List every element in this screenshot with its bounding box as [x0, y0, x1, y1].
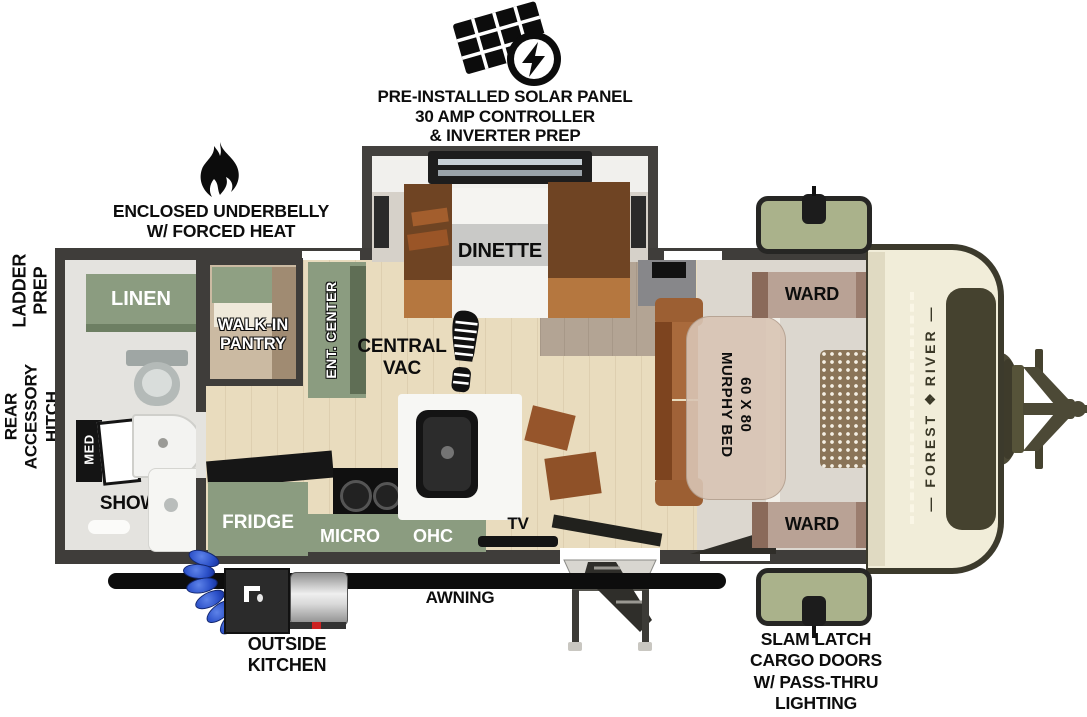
outside-kitchen-griddle: [290, 572, 348, 626]
chair: [544, 452, 601, 501]
nightstand-top: [652, 262, 686, 278]
boot-print-icon: [444, 310, 484, 396]
burner: [373, 482, 401, 510]
murphy-bed-label: 60 X 80 MURPHY BED: [716, 315, 754, 495]
med-label: MED: [82, 420, 97, 480]
central-vac-label: CENTRAL VAC: [356, 336, 448, 380]
ladder-prep-callout: LADDER PREP: [9, 236, 50, 346]
cargo-door-latch-stem: [812, 186, 816, 196]
solar-callout: PRE-INSTALLED SOLAR PANEL 30 AMP CONTROL…: [330, 87, 680, 146]
entry-steps: [558, 556, 662, 654]
burner: [340, 480, 372, 512]
pantry-label: WALK-IN PANTRY: [205, 316, 301, 354]
outside-kitchen-callout: OUTSIDE KITCHEN: [227, 634, 347, 675]
cargo-door-latch: [802, 194, 826, 224]
tv-label: TV: [498, 514, 538, 534]
brand-word-river: RIVER: [922, 328, 938, 386]
brand-emblem-icon: ❖: [922, 393, 939, 406]
front-cap-window-panel: [946, 288, 996, 530]
ward-label-bottom: WARD: [768, 514, 856, 535]
dinette-bench: [548, 182, 630, 280]
underbelly-callout: ENCLOSED UNDERBELLY W/ FORCED HEAT: [66, 201, 376, 241]
outside-kitchen-knob: [257, 594, 263, 602]
rear-accessory-hitch-callout: REAR ACCESSORY HITCH: [1, 354, 62, 480]
outside-kitchen-sink-box: [224, 568, 290, 634]
ward-label-top: WARD: [768, 284, 856, 305]
bath-mat: [88, 520, 130, 534]
front-cap-shading: [868, 252, 885, 566]
brand-word-forest: FOREST: [922, 413, 938, 488]
fridge-label: FRIDGE: [208, 512, 308, 534]
ent-center-label: ENT. CENTER: [323, 255, 339, 405]
dinette-label: DINETTE: [452, 240, 548, 263]
forest-river-logo: — FOREST ❖ RIVER —: [919, 278, 941, 538]
solar-panel-icon: [450, 0, 568, 92]
outside-kitchen-faucet: [244, 586, 249, 602]
cargo-doors-callout: SLAM LATCH CARGO DOORS W/ PASS-THRU LIGH…: [727, 629, 905, 714]
dinette-window-pane: [438, 170, 582, 176]
micro-label: MICRO: [313, 526, 387, 547]
cargo-door-latch: [802, 596, 826, 626]
bathroom-doorway: [196, 412, 206, 478]
logo-rule: —: [922, 495, 938, 512]
sink-drain: [441, 446, 454, 459]
flame-icon: [196, 142, 244, 202]
shower-drain: [158, 438, 168, 448]
linen-label: LINEN: [86, 288, 196, 311]
pantry-shelf-green: [212, 267, 272, 303]
rv-floorplan-diagram: PRE-INSTALLED SOLAR PANEL 30 AMP CONTROL…: [0, 0, 1087, 717]
bed-pillow: [820, 350, 868, 468]
ohc-label: OHC: [406, 526, 460, 547]
dinette-window-pane: [438, 159, 582, 165]
front-cap-molding: [910, 292, 914, 524]
window-gap: [664, 251, 722, 260]
tv-soundbar: [478, 536, 558, 547]
bath-sink: [164, 498, 178, 512]
outside-kitchen-valve: [312, 622, 321, 629]
dinette-bench-seat: [548, 278, 630, 318]
toilet-seat: [142, 369, 172, 397]
logo-rule: —: [922, 304, 938, 321]
dinette-window: [428, 151, 592, 184]
awning-label: AWNING: [405, 588, 515, 608]
sofa-back: [655, 322, 672, 480]
